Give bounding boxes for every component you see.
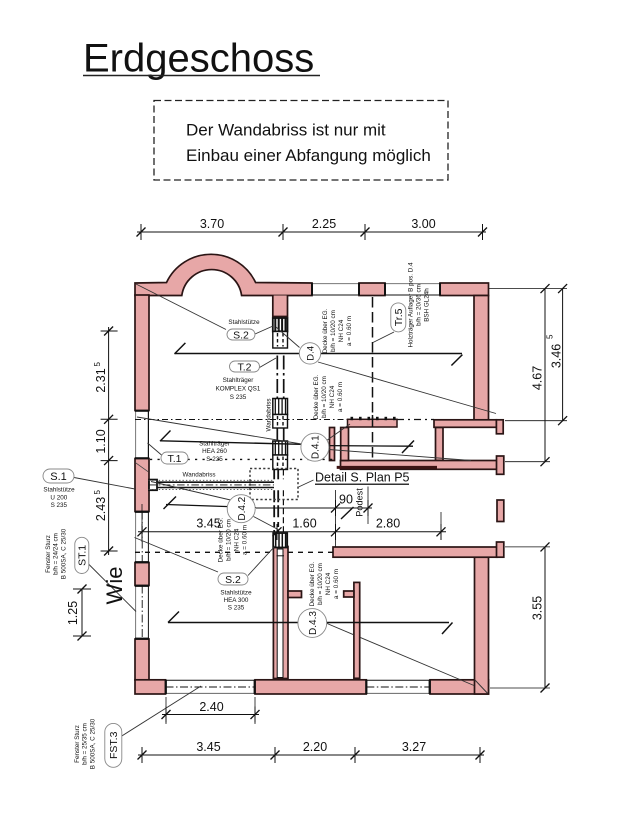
svg-text:T.2: T.2: [237, 361, 251, 373]
svg-text:NH C24: NH C24: [329, 385, 336, 408]
svg-text:Fenster Sturz: Fenster Sturz: [74, 725, 81, 763]
svg-text:Erdgeschoss: Erdgeschoss: [83, 37, 314, 81]
svg-text:5: 5: [93, 362, 102, 367]
svg-text:a = 0.60 m: a = 0.60 m: [346, 316, 353, 346]
svg-text:a = 0.60 m: a = 0.60 m: [337, 382, 344, 412]
svg-text:Stahlstütze: Stahlstütze: [228, 319, 260, 326]
svg-text:Decke über EG.: Decke über EG.: [218, 517, 225, 562]
svg-text:b/h = 10/20 cm: b/h = 10/20 cm: [317, 563, 324, 605]
svg-text:NH C24: NH C24: [325, 572, 332, 595]
svg-text:3.00: 3.00: [411, 217, 435, 231]
svg-text:NH C24: NH C24: [234, 528, 241, 551]
svg-text:HEA 260: HEA 260: [202, 448, 227, 455]
svg-text:S 235: S 235: [206, 456, 223, 463]
svg-text:B 500SA, C 25/30: B 500SA, C 25/30: [60, 528, 67, 579]
svg-text:Stahlstütze: Stahlstütze: [220, 590, 252, 597]
svg-text:b/h = 24/24 cm: b/h = 24/24 cm: [53, 533, 60, 575]
svg-text:FST.3: FST.3: [108, 731, 120, 759]
svg-text:Detail S. Plan P5: Detail S. Plan P5: [315, 471, 410, 485]
svg-text:Holzträger Auflager B pos. D.4: Holzträger Auflager B pos. D.4: [408, 262, 415, 348]
svg-text:3.45: 3.45: [196, 740, 220, 754]
svg-text:B 500SA, C 25/30: B 500SA, C 25/30: [89, 718, 96, 769]
svg-text:S.2: S.2: [225, 574, 241, 586]
svg-text:b/h = 20/36 cm: b/h = 20/36 cm: [416, 284, 423, 326]
svg-text:D.4.3: D.4.3: [308, 611, 319, 635]
svg-text:Wandabriss: Wandabriss: [182, 472, 215, 479]
svg-text:KOMPLEX QS1: KOMPLEX QS1: [216, 386, 261, 393]
svg-text:5: 5: [93, 490, 102, 495]
svg-text:Stahlträger: Stahlträger: [199, 441, 230, 448]
svg-text:S.2: S.2: [233, 329, 249, 341]
svg-text:S 235: S 235: [228, 605, 245, 612]
svg-text:b/h = 10/20 cm: b/h = 10/20 cm: [321, 376, 328, 418]
svg-text:2.20: 2.20: [303, 740, 327, 754]
svg-text:BSH GL24h: BSH GL24h: [424, 288, 431, 322]
svg-text:2.31: 2.31: [94, 368, 108, 392]
svg-text:3.46: 3.46: [550, 344, 564, 368]
svg-text:3.27: 3.27: [402, 740, 426, 754]
svg-text:1.60: 1.60: [292, 517, 316, 531]
svg-text:S.1: S.1: [50, 471, 67, 483]
svg-text:2.80: 2.80: [376, 517, 400, 531]
svg-text:1.25: 1.25: [66, 601, 80, 625]
svg-text:4.67: 4.67: [531, 366, 545, 390]
svg-text:5: 5: [546, 334, 555, 339]
svg-text:a = 0.60 m: a = 0.60 m: [242, 525, 249, 555]
svg-text:2.43: 2.43: [94, 497, 108, 521]
svg-text:2.25: 2.25: [312, 217, 336, 231]
svg-text:90: 90: [339, 493, 353, 507]
svg-text:T.1: T.1: [167, 453, 181, 465]
svg-text:Stahlstütze: Stahlstütze: [43, 487, 75, 494]
svg-text:Decke über EG.: Decke über EG.: [322, 308, 329, 353]
svg-text:U 200: U 200: [50, 494, 67, 501]
svg-text:D.4.1: D.4.1: [311, 435, 322, 459]
svg-text:Wie: Wie: [102, 567, 127, 605]
svg-text:Stahlträger: Stahlträger: [223, 377, 254, 384]
svg-text:S 235: S 235: [51, 502, 68, 509]
svg-text:Decke über EG.: Decke über EG.: [313, 374, 320, 419]
svg-text:Podest: Podest: [355, 488, 365, 517]
svg-text:Wandabriss: Wandabriss: [266, 398, 273, 431]
svg-text:S 235: S 235: [230, 394, 247, 401]
svg-text:3.55: 3.55: [531, 596, 545, 620]
svg-text:HEA 300: HEA 300: [224, 597, 249, 604]
svg-text:D.4.2: D.4.2: [237, 496, 248, 520]
svg-text:D.4: D.4: [306, 346, 317, 361]
svg-text:Der Wandabriss ist nur mit: Der Wandabriss ist nur mit: [186, 121, 386, 140]
svg-text:b/h = 25/35 cm: b/h = 25/35 cm: [82, 723, 89, 765]
svg-text:b/h = 10/20 cm: b/h = 10/20 cm: [226, 519, 233, 561]
svg-text:ST.1: ST.1: [76, 545, 88, 566]
svg-text:b/h = 10/20 cm: b/h = 10/20 cm: [330, 310, 337, 352]
svg-text:Decke über EG.: Decke über EG.: [309, 561, 316, 606]
svg-text:Fenster Sturz: Fenster Sturz: [45, 535, 52, 573]
svg-text:Tr.5: Tr.5: [393, 308, 405, 326]
svg-text:a = 0.60 m: a = 0.60 m: [333, 569, 340, 599]
svg-text:NH C24: NH C24: [338, 319, 345, 342]
svg-text:1.10: 1.10: [94, 429, 108, 453]
svg-text:3.70: 3.70: [200, 217, 224, 231]
svg-text:Einbau einer Abfangung möglich: Einbau einer Abfangung möglich: [186, 146, 431, 165]
svg-text:2.40: 2.40: [199, 700, 223, 714]
